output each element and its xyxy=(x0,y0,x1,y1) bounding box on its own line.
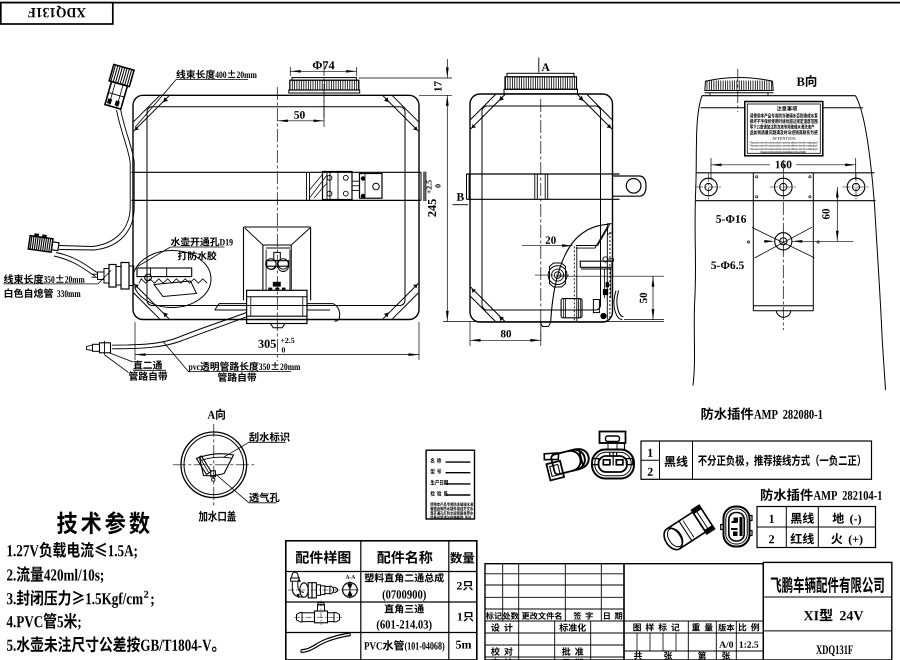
svg-text:Wiper used wash with water the: Wiper used wash with water the radiator … xyxy=(760,151,807,154)
svg-text:ATTENTION: ATTENTION xyxy=(772,136,796,141)
